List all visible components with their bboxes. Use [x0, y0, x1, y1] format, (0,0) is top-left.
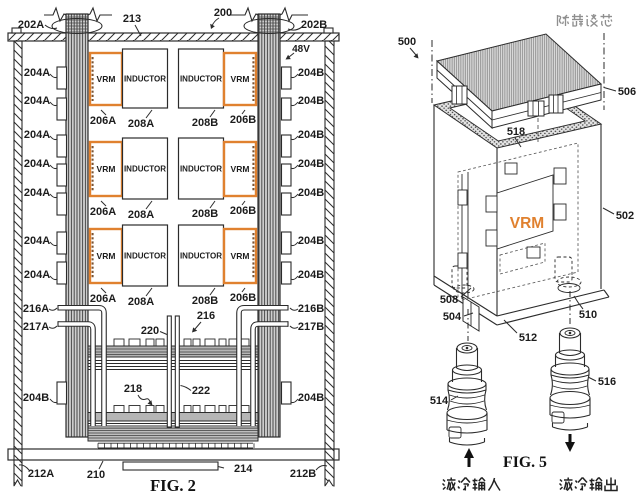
- svg-text:510: 510: [579, 309, 597, 321]
- svg-text:216B: 216B: [298, 303, 324, 315]
- svg-text:214: 214: [234, 463, 253, 475]
- svg-text:208A: 208A: [128, 209, 154, 221]
- svg-text:217B: 217B: [298, 321, 324, 333]
- svg-text:212A: 212A: [28, 468, 54, 480]
- svg-text:VRM: VRM: [97, 74, 116, 84]
- svg-text:204B: 204B: [298, 158, 324, 170]
- svg-text:FIG. 5: FIG. 5: [503, 454, 547, 471]
- svg-text:208B: 208B: [192, 208, 218, 220]
- svg-text:204A: 204A: [24, 158, 50, 170]
- svg-text:202A: 202A: [18, 19, 44, 31]
- svg-text:516: 516: [598, 376, 616, 388]
- svg-text:206B: 206B: [230, 292, 256, 304]
- svg-text:204B: 204B: [23, 392, 49, 404]
- svg-text:204B: 204B: [298, 95, 324, 107]
- svg-text:48V: 48V: [292, 44, 310, 55]
- svg-text:216: 216: [197, 310, 215, 322]
- svg-text:204A: 204A: [24, 67, 50, 79]
- svg-text:208B: 208B: [192, 117, 218, 129]
- svg-text:222: 222: [192, 385, 210, 397]
- svg-text:502: 502: [616, 210, 634, 222]
- svg-text:VRM: VRM: [231, 251, 250, 261]
- svg-text:220: 220: [141, 325, 159, 337]
- svg-text:204A: 204A: [24, 95, 50, 107]
- svg-text:INDUCTOR: INDUCTOR: [180, 252, 222, 261]
- svg-text:206A: 206A: [90, 206, 116, 218]
- svg-text:VRM: VRM: [231, 74, 250, 84]
- svg-text:218: 218: [124, 383, 142, 395]
- svg-text:206B: 206B: [230, 205, 256, 217]
- svg-text:VRM: VRM: [97, 251, 116, 261]
- svg-text:208B: 208B: [192, 295, 218, 307]
- svg-text:514: 514: [430, 395, 449, 407]
- svg-text:204B: 204B: [298, 187, 324, 199]
- svg-text:506: 506: [618, 86, 636, 98]
- svg-text:INDUCTOR: INDUCTOR: [124, 165, 166, 174]
- svg-text:206B: 206B: [230, 114, 256, 126]
- svg-text:INDUCTOR: INDUCTOR: [124, 252, 166, 261]
- svg-text:210: 210: [87, 469, 105, 481]
- svg-text:508: 508: [440, 294, 458, 306]
- svg-text:INDUCTOR: INDUCTOR: [180, 165, 222, 174]
- svg-text:INDUCTOR: INDUCTOR: [180, 75, 222, 84]
- svg-text:518: 518: [507, 126, 525, 138]
- svg-text:512: 512: [519, 332, 537, 344]
- svg-text:500: 500: [398, 36, 416, 48]
- svg-text:200: 200: [214, 7, 232, 19]
- svg-text:204B: 204B: [298, 235, 324, 247]
- svg-text:FIG. 2: FIG. 2: [150, 476, 196, 495]
- svg-text:213: 213: [123, 13, 141, 25]
- svg-text:INDUCTOR: INDUCTOR: [124, 75, 166, 84]
- svg-text:VRM: VRM: [510, 215, 544, 232]
- svg-text:VRM: VRM: [231, 164, 250, 174]
- svg-text:504: 504: [443, 311, 462, 323]
- svg-text:204B: 204B: [298, 129, 324, 141]
- svg-text:208A: 208A: [128, 118, 154, 130]
- svg-text:204A: 204A: [24, 269, 50, 281]
- svg-text:204B: 204B: [298, 269, 324, 281]
- svg-text:212B: 212B: [290, 468, 316, 480]
- svg-text:217A: 217A: [23, 321, 49, 333]
- svg-text:216A: 216A: [23, 303, 49, 315]
- svg-text:204B: 204B: [298, 67, 324, 79]
- svg-text:204B: 204B: [298, 392, 324, 404]
- svg-text:202B: 202B: [301, 19, 327, 31]
- svg-text:204A: 204A: [24, 187, 50, 199]
- svg-text:208A: 208A: [128, 296, 154, 308]
- svg-text:206A: 206A: [90, 293, 116, 305]
- svg-text:206A: 206A: [90, 115, 116, 127]
- svg-text:204A: 204A: [24, 129, 50, 141]
- svg-text:204A: 204A: [24, 235, 50, 247]
- svg-text:VRM: VRM: [97, 164, 116, 174]
